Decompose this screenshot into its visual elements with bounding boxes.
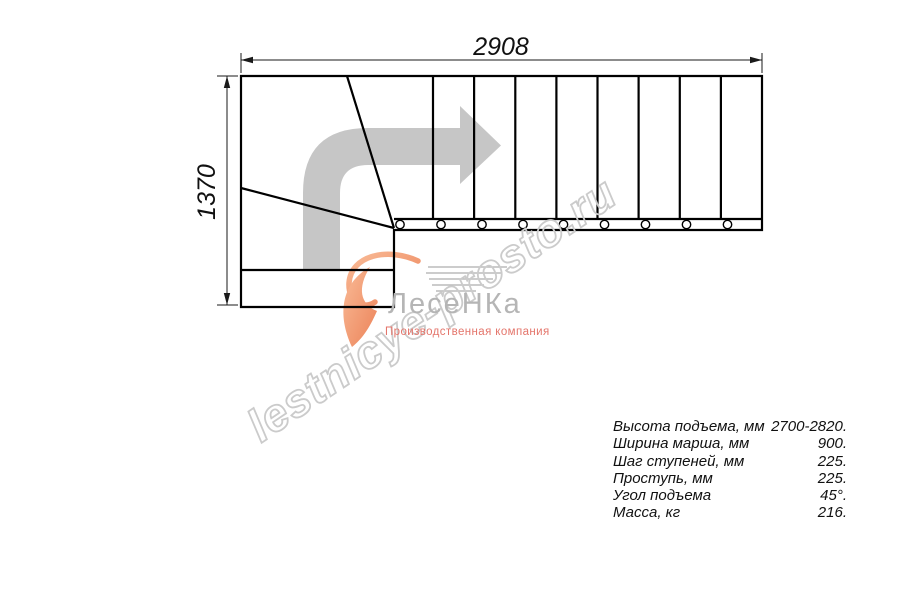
- spec-row: Проступь, мм 225.: [613, 470, 847, 487]
- logo-tagline: Производственная компания: [385, 326, 565, 338]
- spec-table: Высота подъема, мм 2700-2820. Ширина мар…: [613, 418, 847, 522]
- spec-row: Высота подъема, мм 2700-2820.: [613, 418, 847, 435]
- spec-row: Угол подъема 45°.: [613, 487, 847, 504]
- direction-arrow-icon: [303, 106, 501, 270]
- spec-value: 900.: [818, 435, 847, 452]
- spec-value: 225.: [818, 453, 847, 470]
- dim-label-width: 2908: [472, 33, 529, 61]
- spec-label: Ширина марша, мм: [613, 435, 749, 452]
- spec-value: 216.: [818, 504, 847, 521]
- dim-label-height: 1370: [193, 164, 221, 220]
- spec-label: Угол подъема: [613, 487, 711, 504]
- spec-label: Проступь, мм: [613, 470, 713, 487]
- spec-row: Масса, кг 216.: [613, 504, 847, 521]
- spec-label: Шаг ступеней, мм: [613, 453, 744, 470]
- logo-name: ЛесеНКа: [388, 289, 563, 320]
- spec-value: 45°.: [820, 487, 847, 504]
- spec-row: Шаг ступеней, мм 225.: [613, 453, 847, 470]
- spec-label: Масса, кг: [613, 504, 680, 521]
- spec-value: 225.: [818, 470, 847, 487]
- spec-label: Высота подъема, мм: [613, 418, 765, 435]
- spec-row: Ширина марша, мм 900.: [613, 435, 847, 452]
- spec-value: 2700-2820.: [771, 418, 847, 435]
- stair-drawing-canvas: 2908 1370 lestnicye-prosto.ru ЛесеНКа Пр…: [0, 0, 900, 600]
